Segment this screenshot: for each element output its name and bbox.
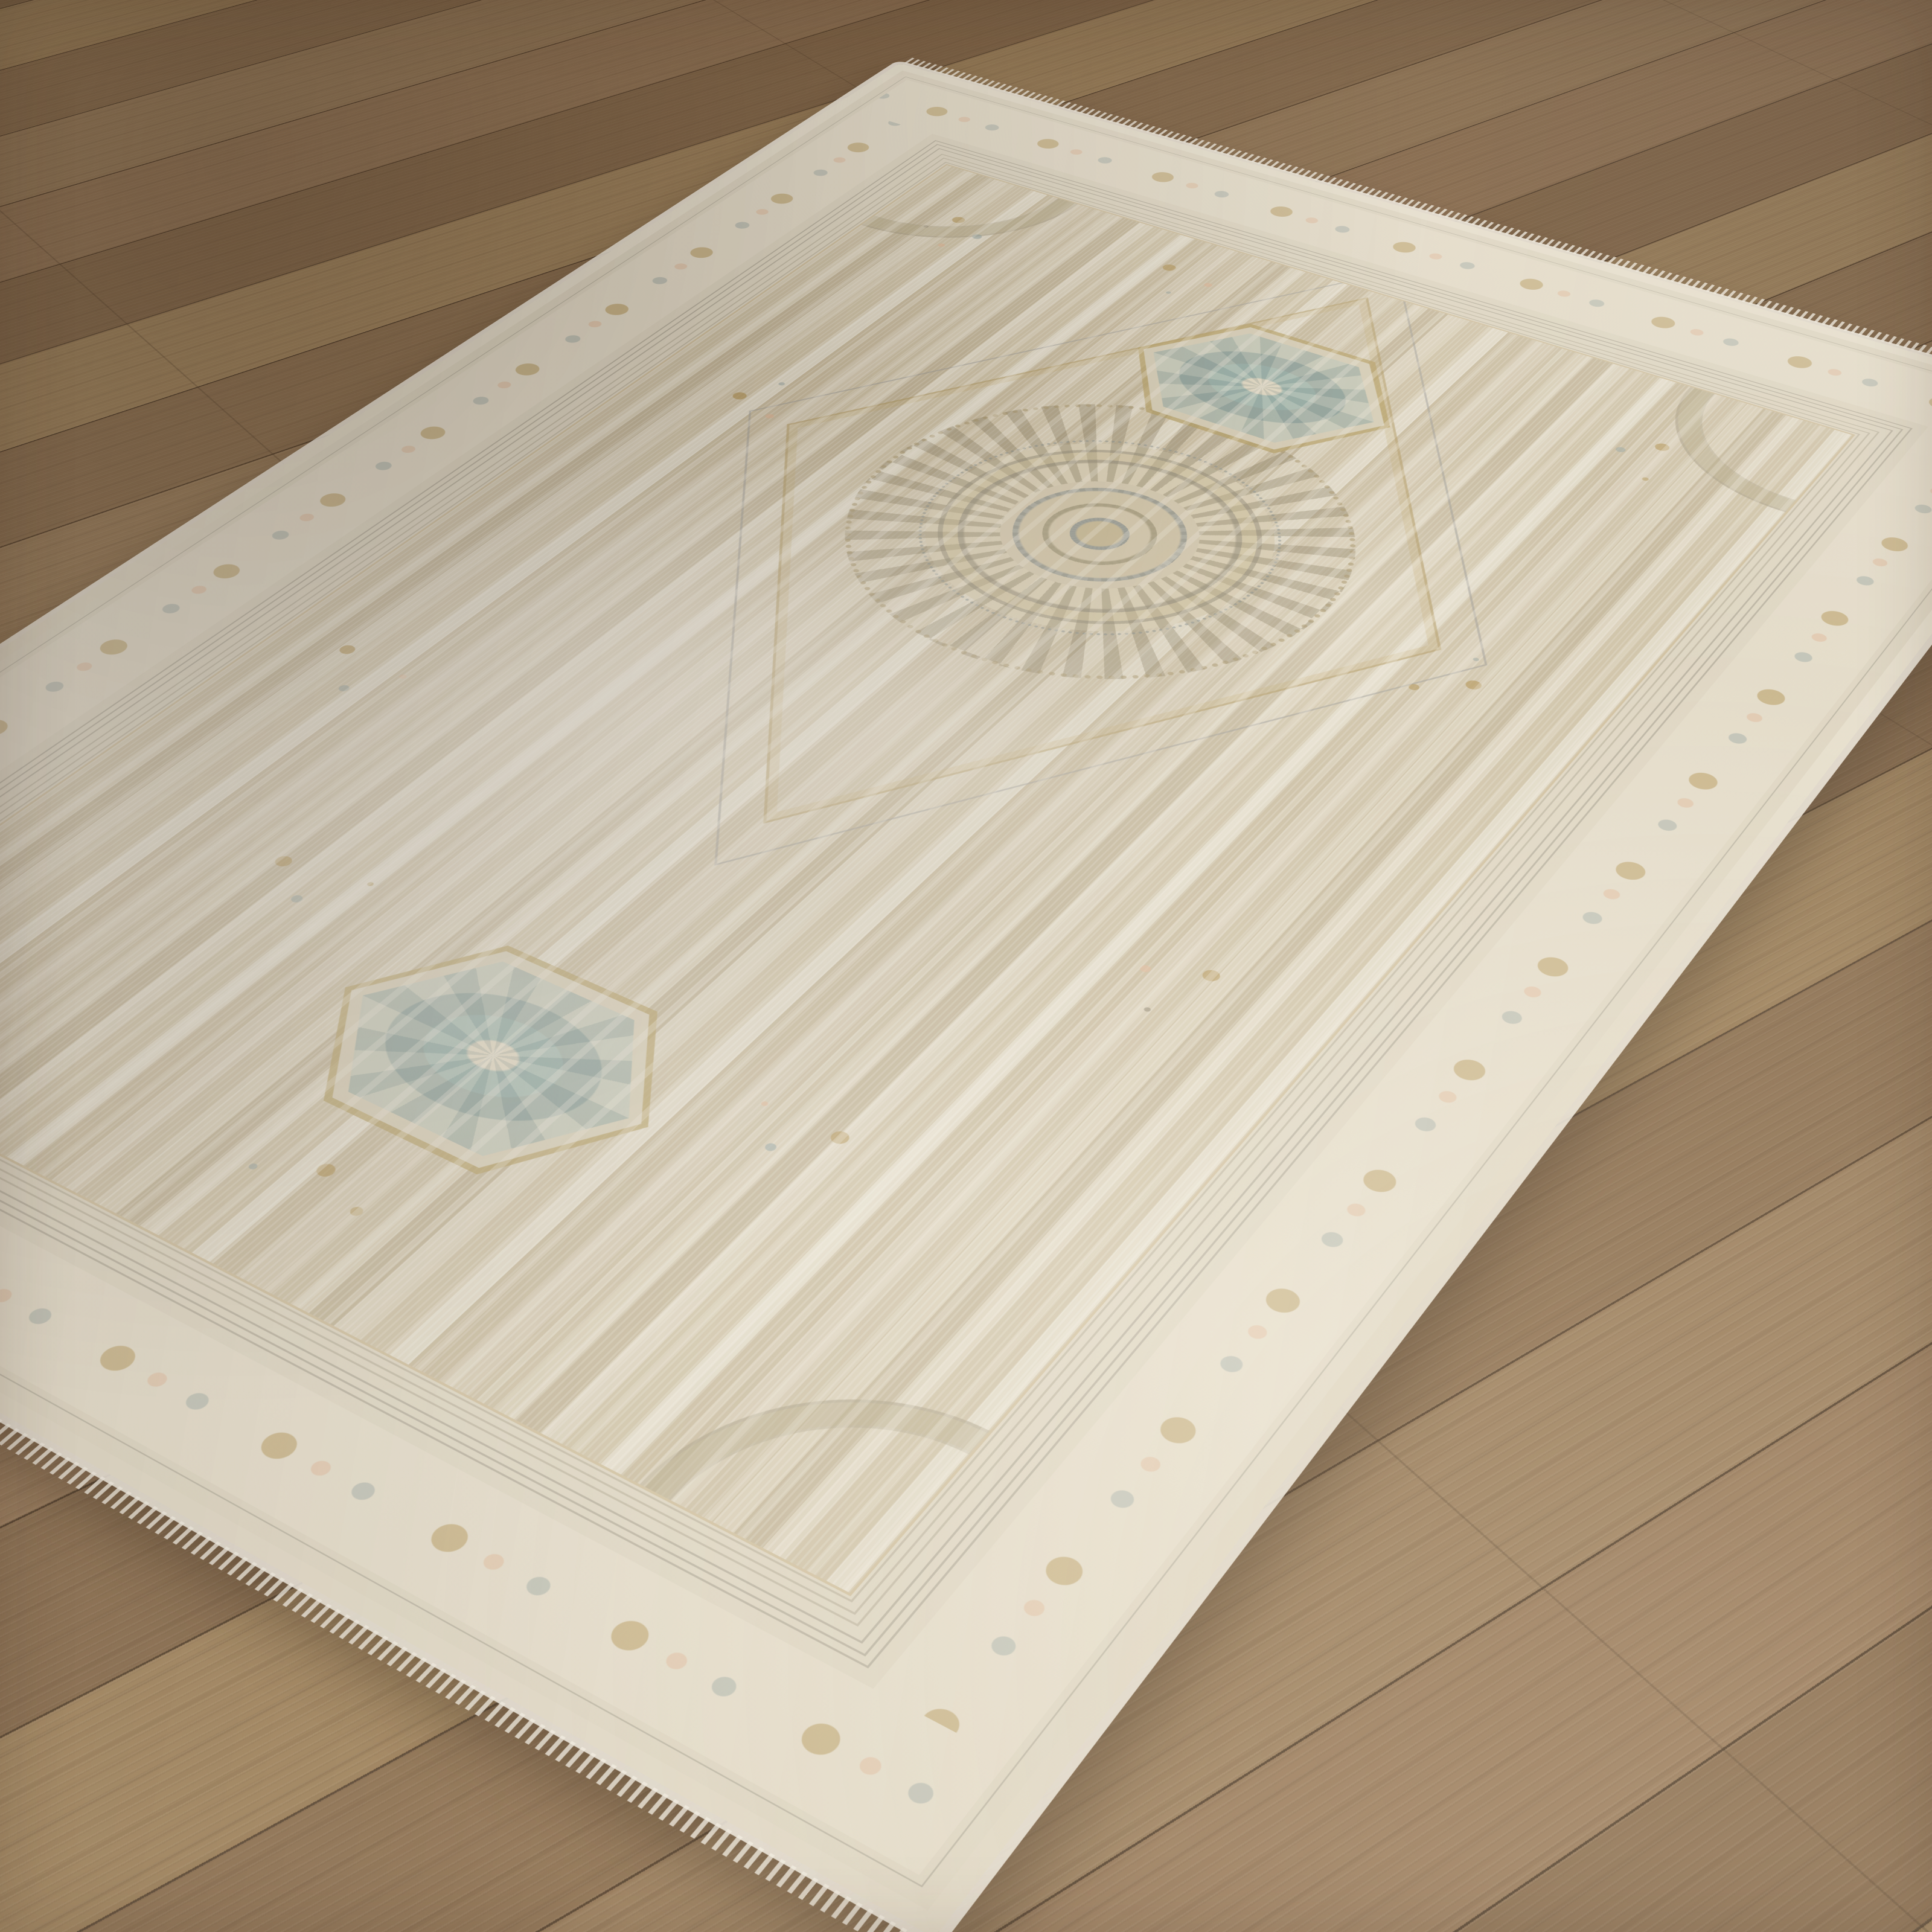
floral-motif	[827, 1129, 852, 1147]
photo: Vintage-style distressed oriental area r…	[0, 0, 1932, 1932]
floral-motif	[336, 644, 358, 656]
floral-motif	[1652, 442, 1671, 452]
floral-motif	[272, 854, 296, 869]
floral-motif	[730, 391, 749, 401]
floral-motif	[1199, 968, 1223, 984]
floral-motif	[313, 1162, 339, 1179]
floral-motif	[1463, 679, 1484, 691]
floral-motif	[1160, 263, 1179, 272]
